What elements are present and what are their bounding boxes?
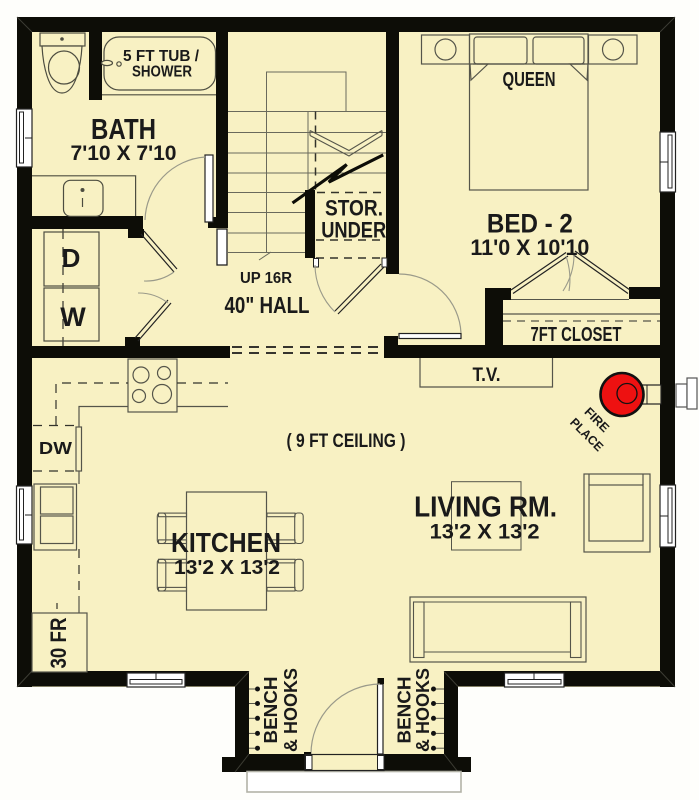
svg-text:5 FT TUB /: 5 FT TUB /	[123, 48, 200, 65]
svg-text:QUEEN: QUEEN	[503, 69, 556, 91]
svg-text:KITCHEN: KITCHEN	[171, 527, 281, 558]
svg-text:40" HALL: 40" HALL	[225, 292, 310, 318]
svg-text:DW: DW	[39, 438, 73, 458]
svg-text:SHOWER: SHOWER	[132, 64, 192, 81]
svg-text:7'10 X 7'10: 7'10 X 7'10	[71, 142, 177, 165]
svg-text:LIVING RM.: LIVING RM.	[414, 492, 557, 524]
svg-text:& HOOKS: & HOOKS	[281, 668, 301, 752]
svg-text:13'2 X 13'2: 13'2 X 13'2	[430, 521, 540, 544]
svg-text:( 9 FT CEILING ): ( 9 FT CEILING )	[287, 431, 406, 452]
svg-text:30 FR: 30 FR	[46, 617, 71, 668]
svg-text:11'0 X 10'10: 11'0 X 10'10	[470, 235, 589, 260]
svg-text:W: W	[60, 302, 86, 332]
svg-text:UNDER: UNDER	[321, 218, 386, 243]
svg-text:T.V.: T.V.	[473, 365, 501, 386]
svg-text:& HOOKS: & HOOKS	[413, 668, 433, 752]
svg-text:13'2 X 13'2: 13'2 X 13'2	[174, 557, 280, 579]
svg-text:UP 16R: UP 16R	[240, 270, 292, 287]
svg-text:7FT CLOSET: 7FT CLOSET	[531, 324, 622, 346]
svg-text:BED - 2: BED - 2	[487, 209, 573, 239]
svg-text:D: D	[62, 243, 81, 273]
svg-text:BENCH: BENCH	[261, 677, 281, 744]
svg-text:BENCH: BENCH	[395, 677, 415, 744]
